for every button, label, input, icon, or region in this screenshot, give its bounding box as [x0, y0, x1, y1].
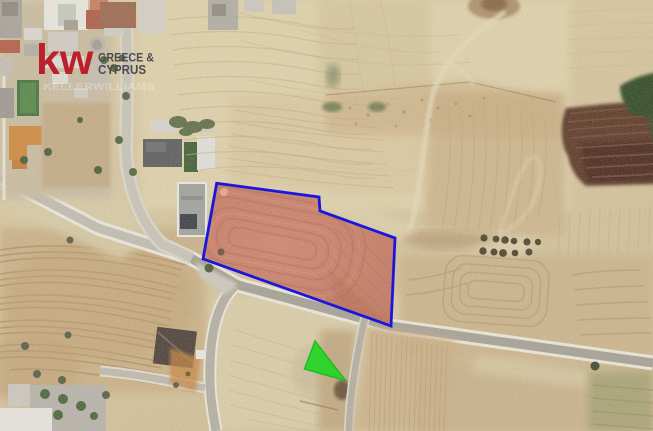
svg-text:kw: kw: [36, 36, 94, 84]
svg-text:KELLERWILLIAMS: KELLERWILLIAMS: [43, 81, 155, 93]
svg-text:CYPRUS: CYPRUS: [98, 63, 146, 77]
